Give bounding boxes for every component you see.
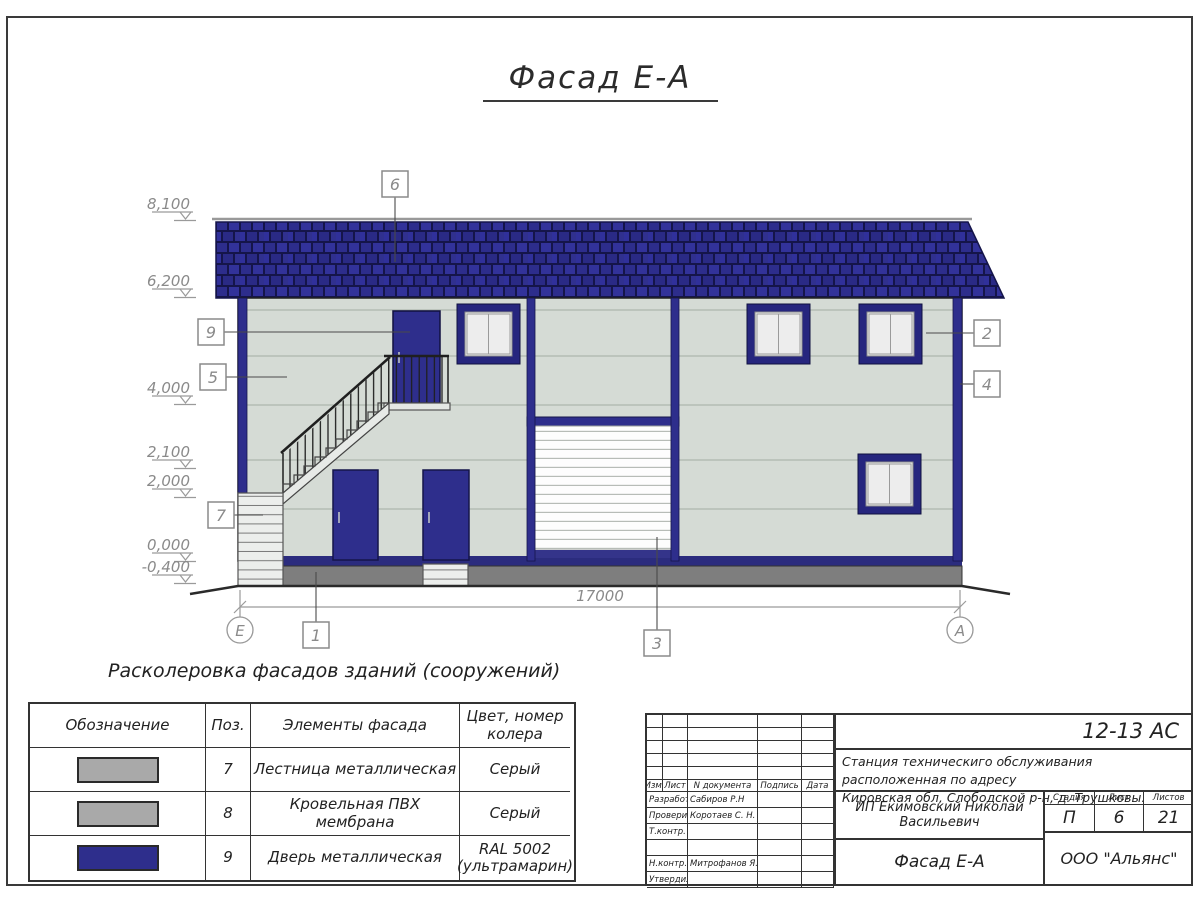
svg-text:3: 3 bbox=[652, 634, 662, 653]
tb-date-cell bbox=[802, 808, 834, 824]
tb-role-name bbox=[688, 824, 758, 840]
legend-header-designation: Обозначение bbox=[30, 704, 206, 748]
tb-sheets-label: Листов bbox=[1144, 792, 1193, 805]
axis-marker-left: Е bbox=[227, 617, 253, 643]
tb-role-name: Сабиров Р.Н bbox=[688, 792, 758, 808]
tb-role-name: Митрофанов Я. А. bbox=[688, 856, 758, 872]
pilaster-left bbox=[527, 298, 535, 561]
legend-color: Серый bbox=[460, 748, 570, 792]
legend-swatch-cell bbox=[30, 792, 206, 836]
elevation-mark-6200: 6,200 bbox=[147, 272, 196, 298]
pilaster-right bbox=[671, 298, 679, 561]
tb-role: Разработал bbox=[647, 792, 688, 808]
legend-swatch-cell bbox=[30, 836, 206, 880]
legend-header-color: Цвет, номер колера bbox=[460, 704, 570, 748]
garage-lintel bbox=[527, 417, 679, 426]
axis-left-label: Е bbox=[235, 622, 245, 640]
legend-element: Лестница металлическая bbox=[251, 748, 460, 792]
legend-color: Серый bbox=[460, 792, 570, 836]
elevation-mark-2100: 2,100 bbox=[147, 443, 196, 469]
roof bbox=[216, 222, 1004, 298]
elevation-mark-8100: 8,100 bbox=[147, 195, 196, 221]
tb-company: ООО "Альянс" bbox=[1045, 833, 1193, 884]
tb-date-cell bbox=[802, 856, 834, 872]
svg-text:-0,400: -0,400 bbox=[142, 558, 190, 576]
svg-text:2,000: 2,000 bbox=[147, 472, 190, 490]
tb-sign-cell bbox=[758, 872, 802, 888]
tb-stage-label: Стадия bbox=[1045, 792, 1095, 805]
facade-drawing: 17000 Е А 8,100 6,200 4,000 2,100 2,000 bbox=[0, 0, 1200, 670]
garage-sill-band bbox=[535, 550, 671, 558]
tb-role: Н.контр. bbox=[647, 856, 688, 872]
svg-text:2,100: 2,100 bbox=[147, 443, 190, 461]
tb-head-doc: N документа bbox=[688, 780, 758, 792]
tb-role-name bbox=[688, 840, 758, 856]
title-block-signature-grid: Изм. Лист N документа Подпись Дата Разра… bbox=[647, 715, 834, 884]
legend-header-pos: Поз. bbox=[206, 704, 251, 748]
elevation-mark-2000: 2,000 bbox=[147, 472, 196, 498]
legend-pos: 7 bbox=[206, 748, 251, 792]
span-dim-label: 17000 bbox=[576, 587, 624, 605]
window-upper-mid bbox=[747, 304, 810, 364]
tb-date-cell bbox=[802, 840, 834, 856]
svg-text:4,000: 4,000 bbox=[147, 379, 190, 397]
title-block: Изм. Лист N документа Подпись Дата Разра… bbox=[645, 713, 1193, 886]
axis-right-label: А bbox=[954, 622, 965, 640]
svg-text:7: 7 bbox=[216, 506, 227, 525]
elevation-mark-minus0400: -0,400 bbox=[142, 558, 196, 584]
window-upper-left bbox=[457, 304, 520, 364]
tb-sheets-value: 21 bbox=[1144, 805, 1193, 833]
corner-trim-right bbox=[953, 298, 962, 561]
window-lower-right bbox=[858, 454, 921, 514]
tb-stage-value: П bbox=[1045, 805, 1095, 833]
landing-platform bbox=[384, 403, 450, 410]
legend-title: Расколеровка фасадов зданий (сооружений) bbox=[108, 660, 560, 682]
svg-text:6: 6 bbox=[390, 175, 400, 194]
svg-text:6,200: 6,200 bbox=[147, 272, 190, 290]
tb-sheet-value: 6 bbox=[1095, 805, 1145, 833]
tb-role bbox=[647, 840, 688, 856]
tb-sign-cell bbox=[758, 840, 802, 856]
swatch-gray-roof bbox=[77, 801, 159, 827]
legend-element: Дверь металлическая bbox=[251, 836, 460, 880]
tb-role-name: Коротаев С. Н. bbox=[688, 808, 758, 824]
tb-head-sign: Подпись bbox=[758, 780, 802, 792]
plinth bbox=[238, 566, 962, 586]
swatch-blue-door bbox=[77, 845, 159, 871]
legend-element: Кровельная ПВХ мембрана bbox=[251, 792, 460, 836]
tb-head-date: Дата bbox=[802, 780, 834, 792]
tb-client: ИП Екимовский Николай Васильевич bbox=[836, 792, 1043, 840]
dimension-span: 17000 bbox=[234, 587, 966, 617]
tb-sign-cell bbox=[758, 856, 802, 872]
landing-railing bbox=[386, 357, 448, 403]
tb-date-cell bbox=[802, 792, 834, 808]
tb-date-cell bbox=[802, 824, 834, 840]
tb-document-code: 12-13 АС bbox=[836, 715, 1193, 750]
tb-head-list: Лист bbox=[663, 780, 688, 792]
entry-steps-door2 bbox=[423, 564, 468, 586]
callout-corner: 4 bbox=[960, 371, 1000, 397]
garage-door bbox=[535, 426, 671, 550]
elevation-mark-4000: 4,000 bbox=[147, 379, 196, 405]
door-2 bbox=[423, 470, 469, 560]
window-upper-right bbox=[859, 304, 922, 364]
legend-swatch-cell bbox=[30, 748, 206, 792]
tb-role: Т.контр. bbox=[647, 824, 688, 840]
tb-sign-cell bbox=[758, 808, 802, 824]
legend-color: RAL 5002 (ультрамарин) bbox=[460, 836, 570, 880]
svg-text:9: 9 bbox=[206, 323, 216, 342]
title-block-right: 12-13 АС Станция техническиго обслуживан… bbox=[834, 715, 1193, 884]
swatch-gray-stair bbox=[77, 757, 159, 783]
tb-project-description: Станция техническиго обслуживания распол… bbox=[836, 750, 1193, 792]
legend-table: Обозначение Поз. Элементы фасада Цвет, н… bbox=[28, 702, 576, 882]
svg-text:1: 1 bbox=[311, 626, 321, 645]
tb-role-name bbox=[688, 872, 758, 888]
tb-drawing-name: Фасад Е-А bbox=[836, 840, 1043, 884]
axis-marker-right: А bbox=[947, 617, 973, 643]
legend-pos: 8 bbox=[206, 792, 251, 836]
tb-sign-cell bbox=[758, 792, 802, 808]
entry-steps-left bbox=[238, 493, 283, 586]
legend-header-element: Элементы фасада bbox=[251, 704, 460, 748]
tb-role: Проверил bbox=[647, 808, 688, 824]
svg-text:0,000: 0,000 bbox=[147, 536, 190, 554]
tb-sheet-label: Лист bbox=[1095, 792, 1145, 805]
tb-head-izm: Изм. bbox=[647, 780, 663, 792]
svg-text:8,100: 8,100 bbox=[147, 195, 190, 213]
legend-pos: 9 bbox=[206, 836, 251, 880]
tb-sign-cell bbox=[758, 824, 802, 840]
svg-text:5: 5 bbox=[208, 368, 218, 387]
tb-date-cell bbox=[802, 872, 834, 888]
tb-role: Утвердил bbox=[647, 872, 688, 888]
tb-project-line1: Станция техническиго обслуживания распол… bbox=[842, 753, 1187, 789]
svg-text:2: 2 bbox=[982, 324, 992, 343]
svg-text:4: 4 bbox=[982, 375, 992, 394]
